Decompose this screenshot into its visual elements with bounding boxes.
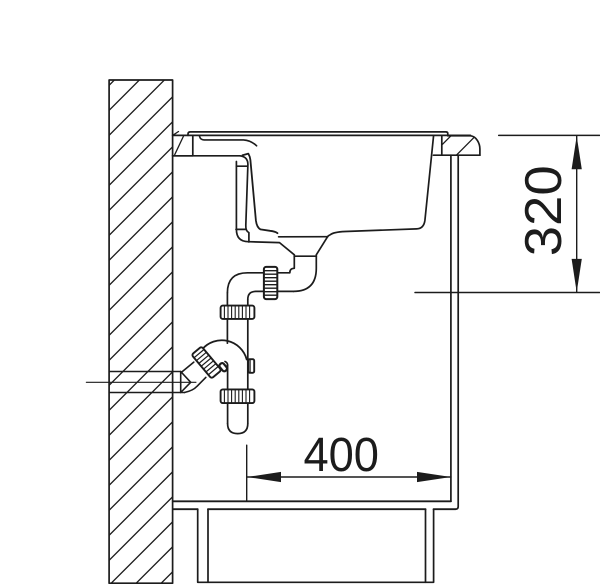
svg-text:400: 400 <box>303 429 379 482</box>
svg-text:320: 320 <box>514 165 572 256</box>
